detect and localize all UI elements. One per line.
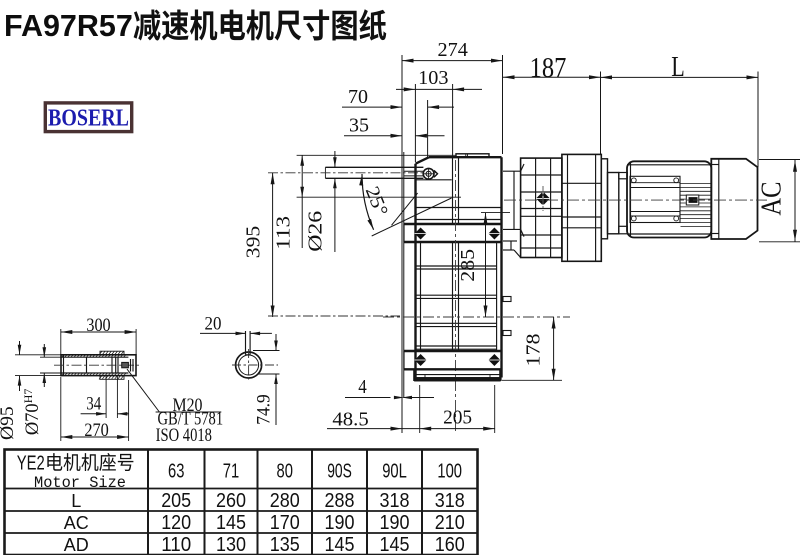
- svg-text:63: 63: [168, 460, 184, 482]
- svg-text:130: 130: [216, 533, 246, 555]
- svg-text:BOSERL: BOSERL: [48, 104, 129, 131]
- svg-text:YE2: YE2: [17, 452, 45, 474]
- svg-text:25°: 25°: [361, 184, 392, 220]
- svg-text:280: 280: [270, 489, 300, 512]
- svg-text:288: 288: [325, 489, 355, 512]
- svg-text:34: 34: [86, 395, 101, 415]
- svg-text:L: L: [671, 52, 685, 83]
- svg-text:74.9: 74.9: [255, 394, 275, 425]
- svg-text:160: 160: [435, 533, 465, 555]
- svg-text:285: 285: [457, 249, 479, 282]
- svg-text:AD: AD: [64, 535, 89, 555]
- svg-text:113: 113: [273, 216, 295, 250]
- svg-text:395: 395: [243, 226, 265, 258]
- svg-text:210: 210: [435, 511, 465, 534]
- svg-text:178: 178: [523, 334, 545, 367]
- svg-text:Ø26: Ø26: [305, 211, 327, 252]
- svg-text:Ø95: Ø95: [0, 406, 18, 440]
- svg-text:190: 190: [325, 511, 355, 534]
- svg-text:70: 70: [348, 86, 368, 108]
- svg-text:145: 145: [380, 533, 410, 555]
- svg-text:205: 205: [443, 407, 472, 429]
- svg-text:Motor Size: Motor Size: [34, 474, 126, 492]
- svg-text:80: 80: [277, 460, 293, 482]
- svg-text:71: 71: [223, 460, 239, 482]
- svg-text:270: 270: [84, 421, 108, 441]
- svg-text:AC: AC: [64, 513, 89, 533]
- svg-text:300: 300: [86, 316, 110, 336]
- svg-text:20: 20: [205, 315, 222, 335]
- svg-text:145: 145: [325, 533, 355, 555]
- svg-text:FA97R57: FA97R57: [4, 9, 133, 43]
- svg-text:90S: 90S: [327, 460, 352, 482]
- svg-text:120: 120: [161, 511, 191, 534]
- svg-text:100: 100: [437, 460, 462, 482]
- svg-text:48.5: 48.5: [332, 409, 368, 431]
- svg-text:135: 135: [270, 533, 300, 555]
- svg-text:103: 103: [418, 67, 448, 89]
- svg-text:205: 205: [161, 489, 191, 512]
- svg-text:260: 260: [216, 489, 246, 512]
- svg-text:318: 318: [435, 489, 465, 512]
- svg-text:274: 274: [438, 39, 468, 61]
- svg-text:ISO 4018: ISO 4018: [156, 425, 212, 446]
- svg-text:90L: 90L: [382, 460, 407, 482]
- svg-text:145: 145: [216, 511, 246, 534]
- svg-text:170: 170: [270, 511, 300, 534]
- svg-text:318: 318: [380, 489, 410, 512]
- svg-text:L: L: [71, 491, 81, 511]
- svg-text:110: 110: [161, 533, 191, 555]
- svg-text:AC: AC: [757, 182, 788, 216]
- svg-text:35: 35: [349, 115, 369, 137]
- svg-text:187: 187: [530, 53, 567, 84]
- svg-text:4: 4: [358, 376, 367, 398]
- svg-text:190: 190: [380, 511, 410, 534]
- svg-text:Ø70H7: Ø70H7: [21, 389, 43, 436]
